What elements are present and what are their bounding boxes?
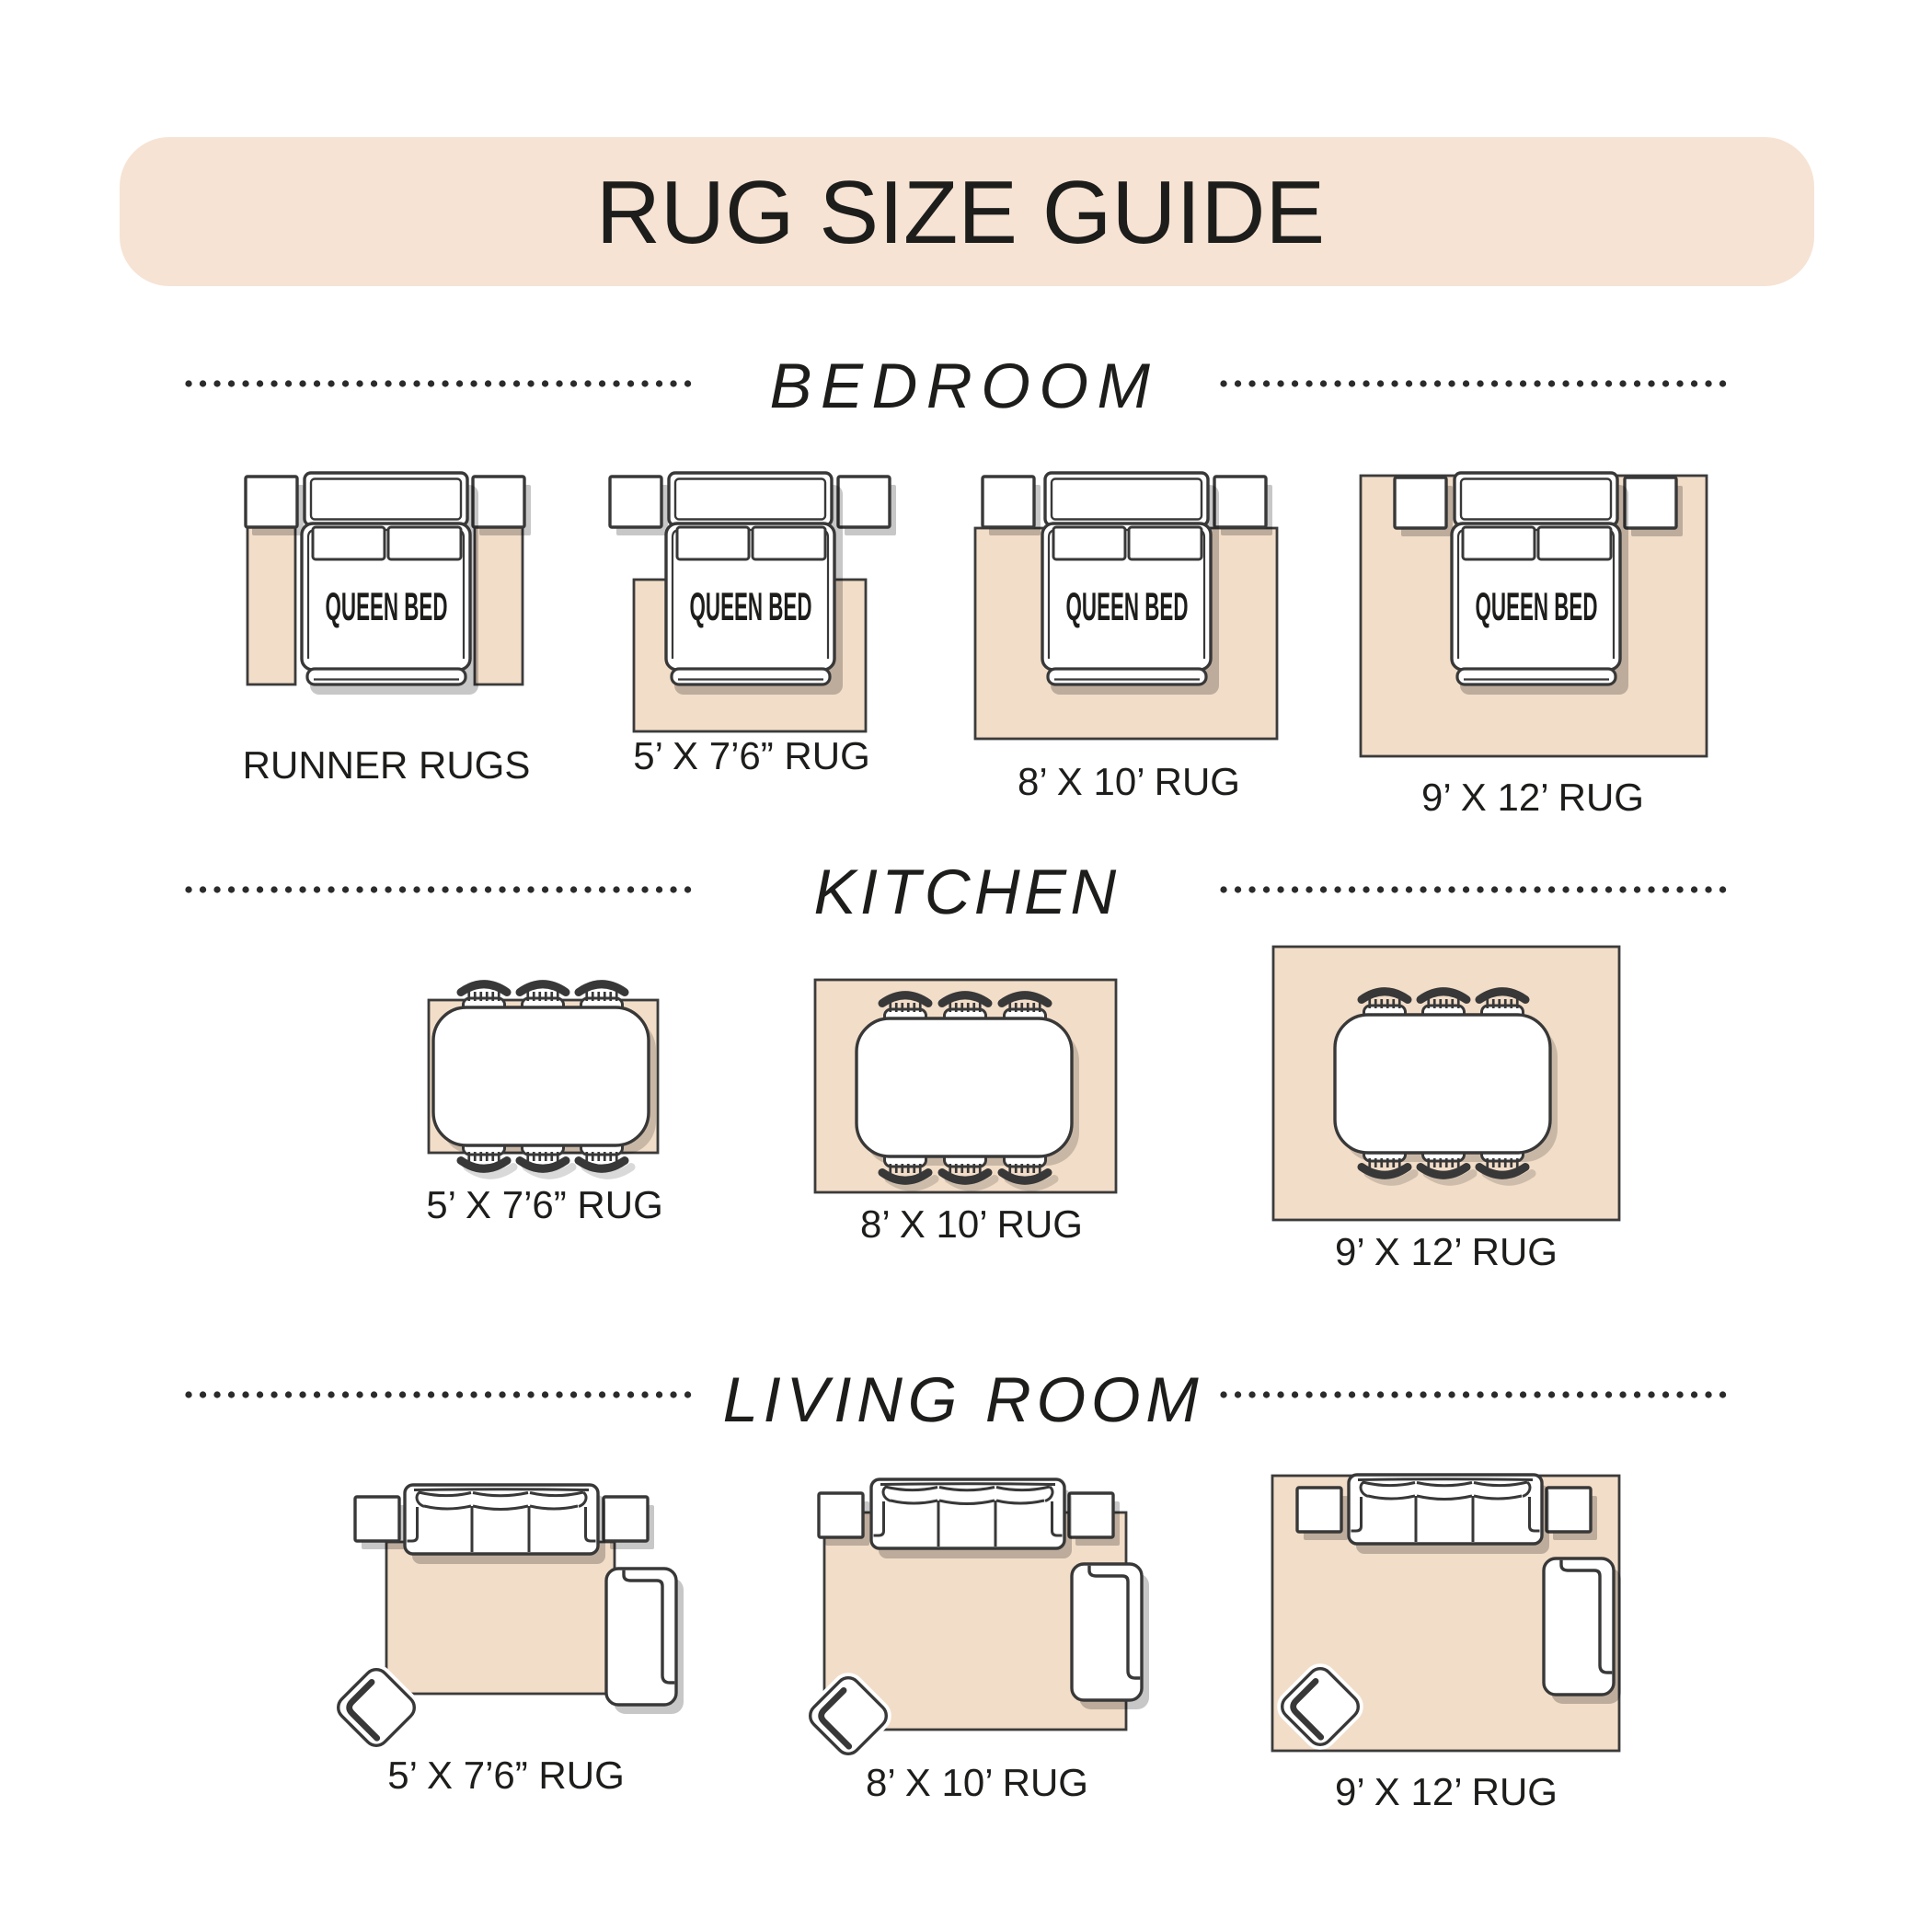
svg-text:8’ X 10’ RUG: 8’ X 10’ RUG xyxy=(860,1202,1083,1246)
svg-text:RUNNER RUGS: RUNNER RUGS xyxy=(243,743,531,787)
svg-text:5’ X 7’6” RUG: 5’ X 7’6” RUG xyxy=(633,734,870,777)
svg-text:RUG SIZE GUIDE: RUG SIZE GUIDE xyxy=(596,162,1325,262)
svg-text:LIVING ROOM: LIVING ROOM xyxy=(723,1364,1204,1435)
svg-text:9’ X 12’ RUG: 9’ X 12’ RUG xyxy=(1335,1770,1558,1813)
svg-text:8’ X 10’ RUG: 8’ X 10’ RUG xyxy=(866,1761,1088,1804)
svg-text:5’ X 7’6” RUG: 5’ X 7’6” RUG xyxy=(426,1183,663,1226)
svg-text:8’ X 10’ RUG: 8’ X 10’ RUG xyxy=(1018,760,1240,803)
svg-text:9’ X 12’ RUG: 9’ X 12’ RUG xyxy=(1335,1230,1558,1273)
svg-text:9’ X 12’ RUG: 9’ X 12’ RUG xyxy=(1421,776,1644,819)
svg-text:5’ X 7’6” RUG: 5’ X 7’6” RUG xyxy=(387,1754,625,1797)
svg-text:BEDROOM: BEDROOM xyxy=(769,351,1158,421)
svg-text:KITCHEN: KITCHEN xyxy=(814,857,1121,927)
